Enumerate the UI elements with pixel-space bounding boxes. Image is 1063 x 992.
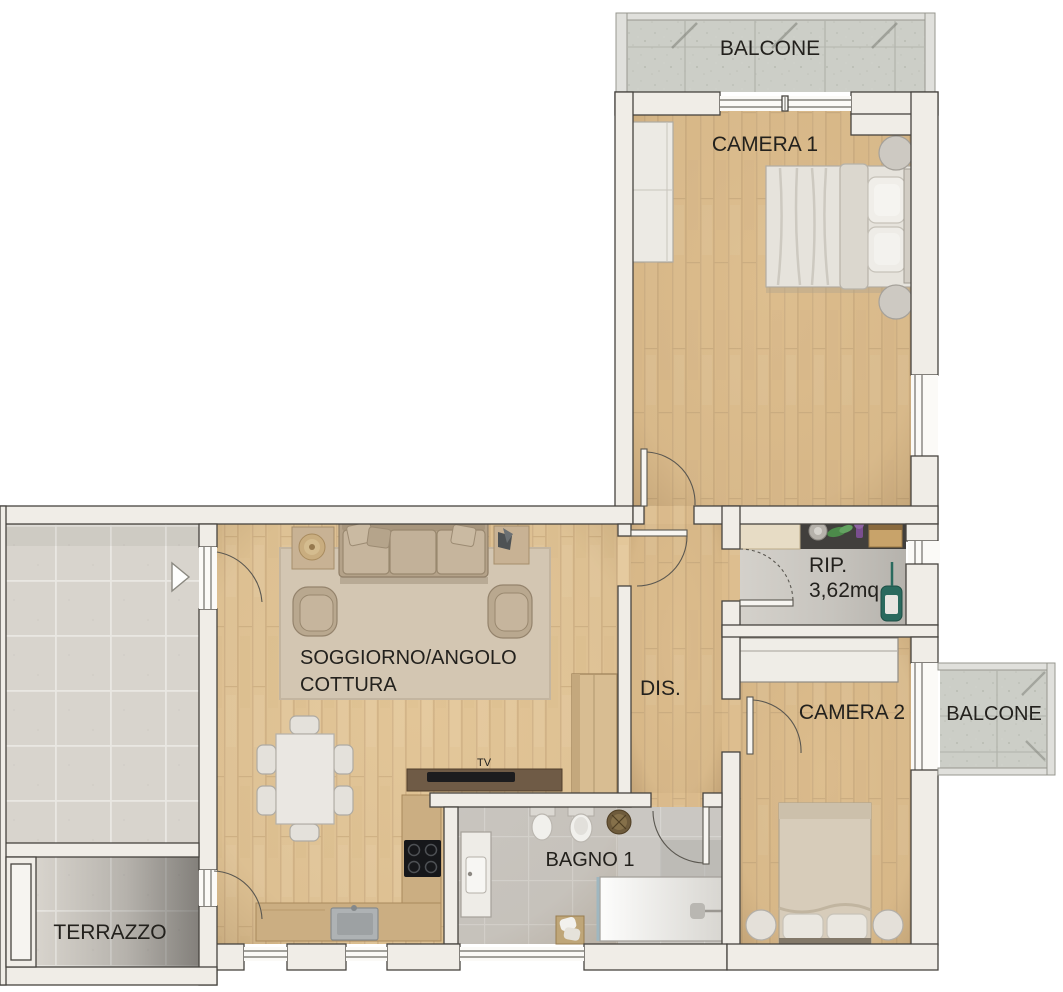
svg-text:DIS.: DIS. (640, 677, 681, 700)
svg-text:RIP.: RIP. (809, 554, 847, 577)
svg-text:CAMERA 1: CAMERA 1 (712, 133, 818, 156)
svg-text:CAMERA 2: CAMERA 2 (799, 701, 905, 724)
svg-text:COTTURA: COTTURA (300, 674, 397, 696)
svg-text:BALCONE: BALCONE (946, 703, 1042, 725)
svg-text:TV: TV (477, 757, 492, 769)
svg-text:BALCONE: BALCONE (720, 37, 820, 60)
svg-text:SOGGIORNO/ANGOLO: SOGGIORNO/ANGOLO (300, 647, 517, 669)
svg-text:TERRAZZO: TERRAZZO (53, 921, 166, 944)
svg-text:BAGNO 1: BAGNO 1 (546, 849, 635, 871)
svg-text:3,62mq: 3,62mq (809, 579, 879, 602)
